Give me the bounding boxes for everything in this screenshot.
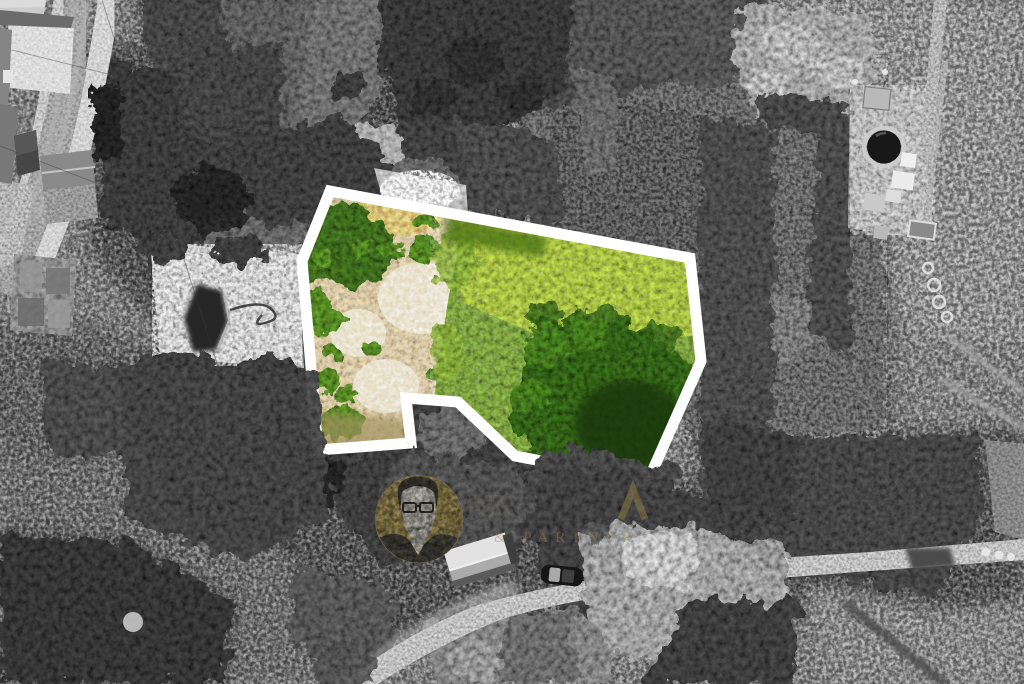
svg-text:RB: RB (466, 487, 509, 523)
svg-text:& PARTNER: & PARTNER (494, 530, 638, 546)
